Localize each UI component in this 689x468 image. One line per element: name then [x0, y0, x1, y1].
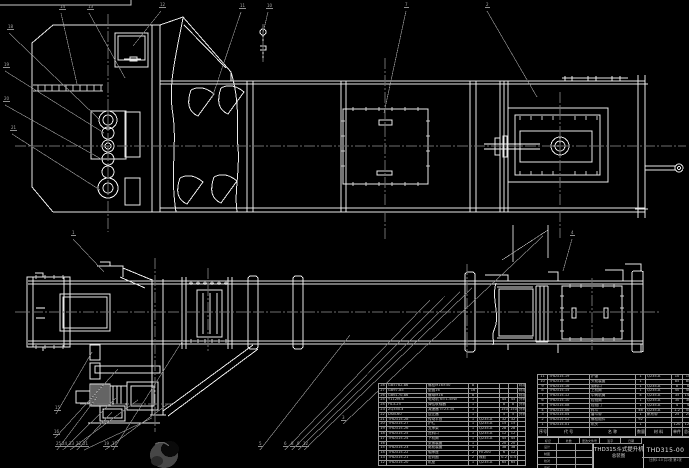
sig-label: 校对 [538, 458, 557, 464]
callout-13: 13 [87, 5, 94, 10]
drawing-subtitle: 总装图 [594, 454, 643, 460]
buckets [178, 86, 244, 204]
callout-17: 17 [111, 442, 118, 447]
scale-sheet-info: 比例1:10 共1张 第1张 [642, 457, 689, 463]
inspection-door-side [341, 107, 430, 186]
bom-header-row: 序号代 号 名 称数量 材 料单件 总计附注 [538, 427, 689, 436]
bom-row: 12THD315-20机座 1Q235-A 6565 [379, 460, 526, 465]
take-up-assembly [484, 108, 608, 182]
callout-5: 5 [258, 442, 263, 447]
drawing-title: THD315斗式提升机 [594, 446, 643, 454]
signature-grid: 设计 制图 校对 审核 [538, 444, 593, 468]
sig-label: 设计 [538, 444, 557, 450]
ladder-rail [33, 85, 103, 91]
callout-1: 1 [71, 231, 76, 236]
callout-12: 12 [302, 442, 309, 447]
bom-table-left: 28GB5782-86螺栓M16×50 8 标准件 27GB97-85垫圈16 … [378, 383, 526, 466]
callout-11: 11 [239, 4, 246, 9]
head-access-panel [115, 33, 148, 67]
callout-21: 21 [82, 442, 89, 447]
belt-curve-left [171, 18, 183, 212]
callout-20: 20 [3, 97, 10, 102]
bom-table-right: 11THD315-19护罩 1Q235-A 1010 10THD315-18头轮… [537, 374, 689, 437]
bom-row: 25Y112M-6电动机 N=1.5kW 1 4545外购 [379, 398, 526, 403]
callout-19: 19 [3, 63, 10, 68]
tail-end-screw [562, 75, 683, 218]
callout-7: 7 [404, 3, 409, 8]
belt-curve-right [231, 72, 238, 212]
cad-canvas: 1413121110721819202114325242322211917151… [0, 0, 689, 468]
drive-unit [76, 345, 160, 423]
callout-8: 8 [290, 442, 295, 447]
callout-18: 18 [7, 25, 14, 30]
callout-6: 6 [283, 442, 288, 447]
boot-plan [493, 264, 641, 353]
top-view-side-section [15, 14, 686, 262]
callout-19: 19 [103, 442, 110, 447]
section-cut-line [502, 225, 548, 262]
watermark-blob [150, 441, 179, 468]
callout-12: 12 [159, 3, 166, 8]
callout-9: 9 [296, 442, 301, 447]
inlet-section-panel [182, 277, 232, 349]
callout-14: 14 [59, 5, 66, 10]
callout-10: 10 [266, 4, 273, 9]
callout-15: 15 [54, 406, 61, 411]
callout-2: 2 [485, 3, 490, 8]
callout-16: 16 [53, 430, 60, 435]
bom-row: 23ZQ350-Ⅱ减速器 i=23.34 1 150150外购 [379, 407, 526, 412]
casing-joints [248, 271, 643, 352]
callout-3: 3 [341, 416, 346, 421]
drawing-title-cell: THD315斗式提升机 总装图 [593, 444, 644, 468]
callout-21: 21 [10, 126, 17, 131]
head-pulley-assembly [91, 111, 140, 205]
drawing-number-cell: THD315-00 比例1:10 共1张 第1张 [642, 444, 689, 468]
callout-4: 4 [570, 231, 575, 236]
drawing-number: THD315-00 [642, 446, 689, 455]
title-block: 标记 处数 更改文件号 签字 日期 设计 制图 校对 审核 THD315斗式提升… [537, 437, 689, 468]
sig-label: 制图 [538, 451, 557, 457]
